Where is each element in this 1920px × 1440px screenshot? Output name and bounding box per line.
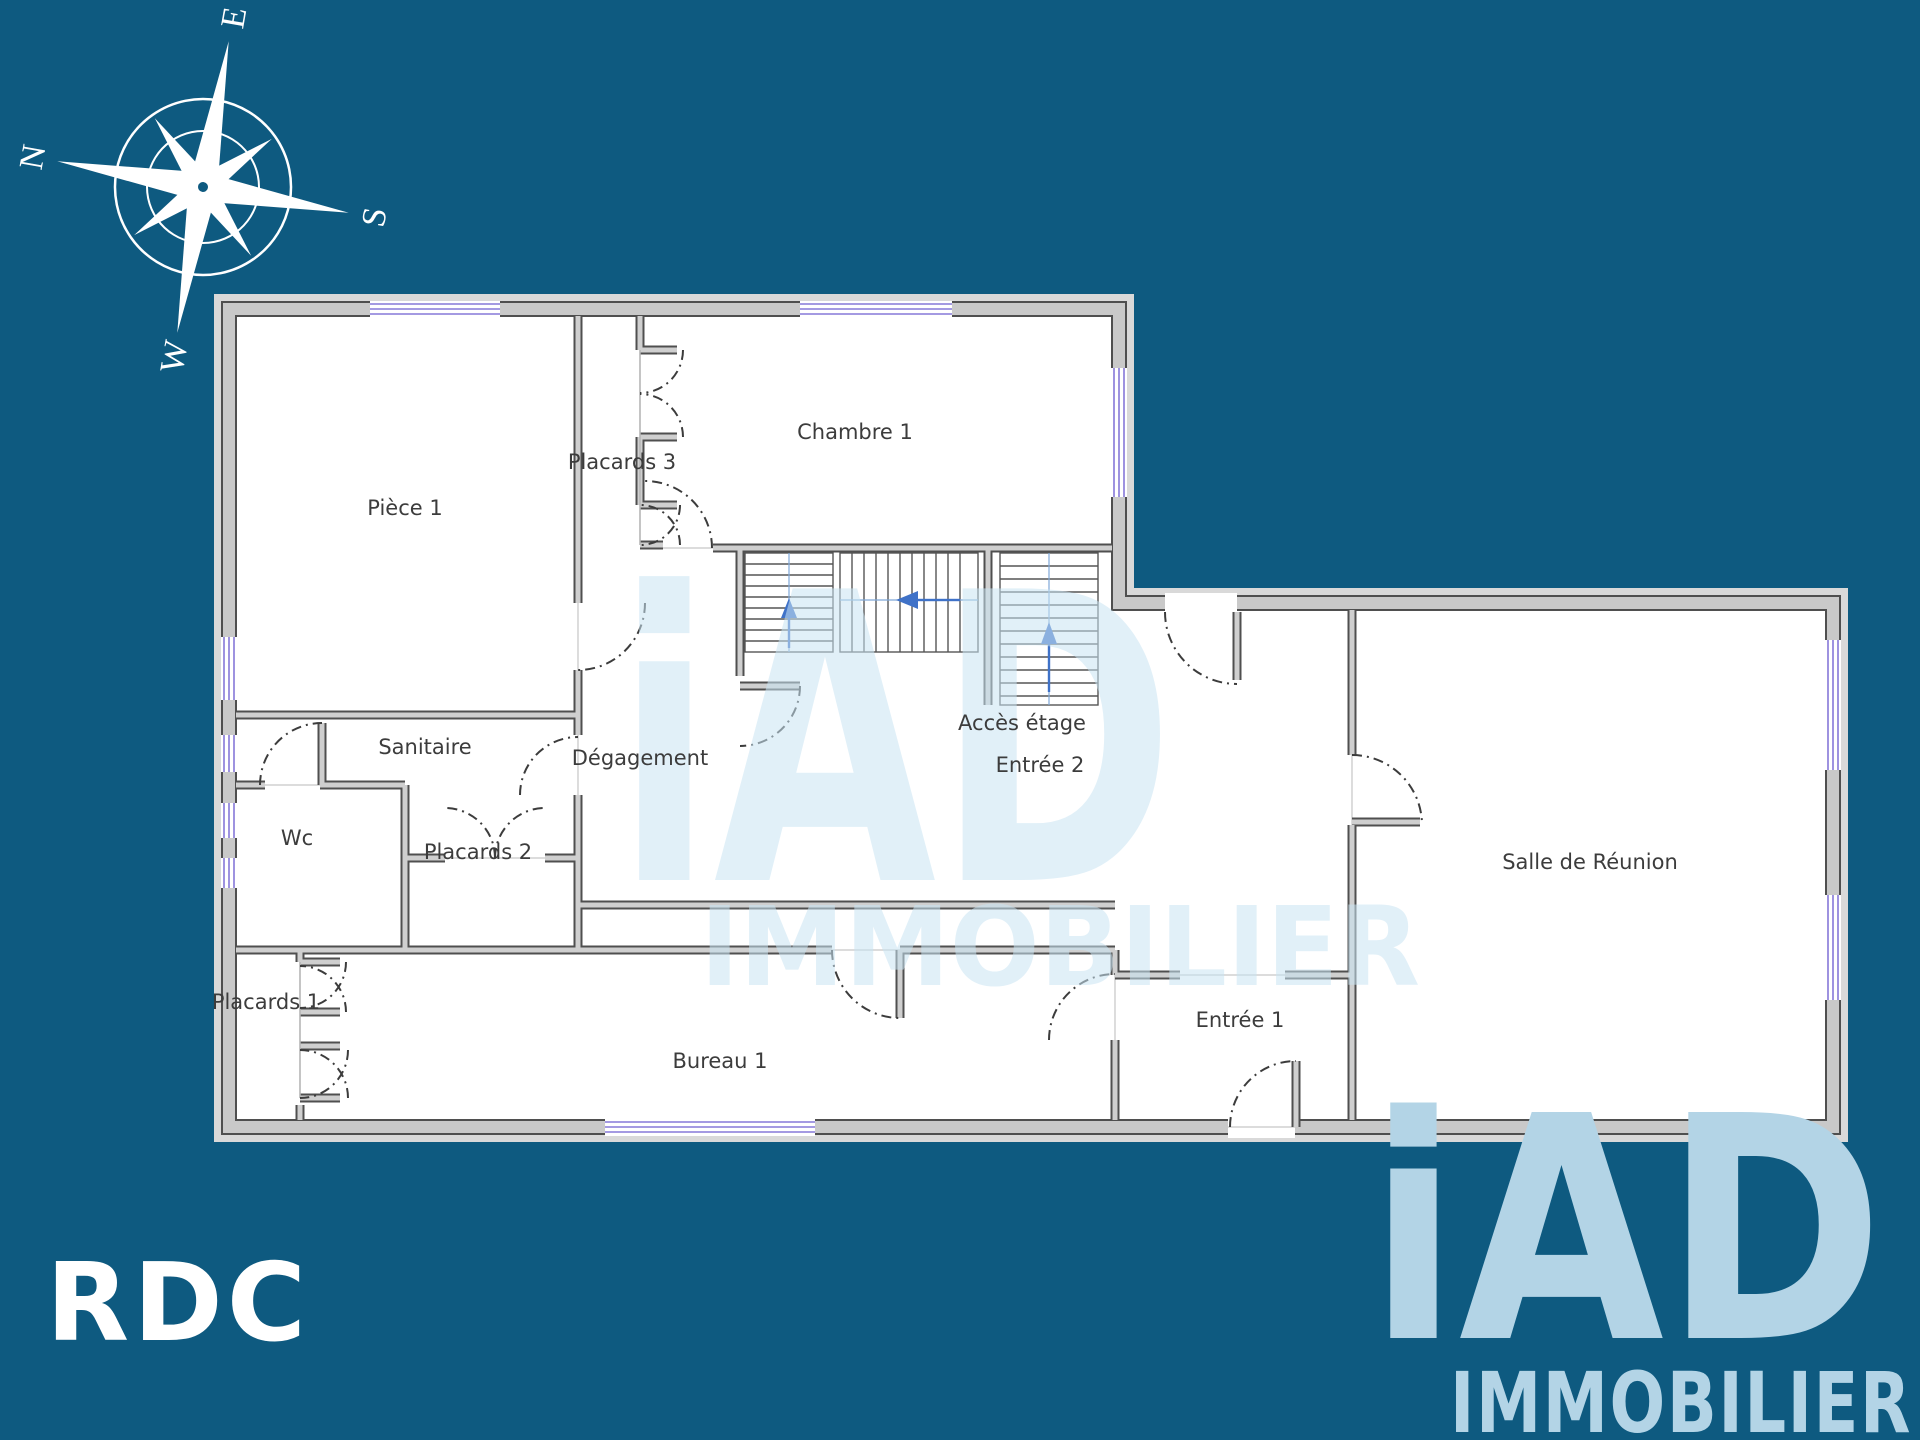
window-top-1 (370, 301, 500, 318)
room-label-wc: Wc (281, 826, 313, 850)
floor-plan-page: N E S W (0, 0, 1920, 1440)
brand-logo-subtitle: IMMOBILIER (1450, 1354, 1912, 1440)
window-top-2 (800, 301, 952, 318)
watermark-subtitle: IMMOBILIER (700, 883, 1420, 1011)
compass-south-label: S (355, 205, 395, 230)
floor-plan-canvas: N E S W (0, 0, 1920, 1440)
compass-east-label: E (214, 4, 254, 31)
window-left-4 (221, 858, 237, 888)
window-right-1 (1825, 640, 1841, 770)
brand-logo: iAD IMMOBILIER (1368, 1051, 1912, 1440)
room-label-bureau1: Bureau 1 (672, 1049, 767, 1073)
compass-north-label: N (13, 142, 54, 173)
room-label-placards3: Placards 3 (568, 450, 676, 474)
room-label-entree2: Entrée 2 (996, 753, 1085, 777)
entry-door-opening-top (1165, 593, 1237, 614)
window-right-2 (1825, 895, 1841, 1000)
window-east-upper-wing (1111, 368, 1127, 497)
floor-plan: iAD IMMOBILIER Pièce 1 Placards 3 Chambr… (212, 294, 1848, 1142)
floor-title: RDC (46, 1241, 310, 1366)
room-label-sanitaire: Sanitaire (378, 735, 471, 759)
window-left-3 (221, 803, 237, 838)
window-left-2 (221, 735, 237, 772)
window-left-1 (221, 637, 237, 700)
room-label-degagement: Dégagement (572, 746, 708, 770)
room-label-placards1: Placards 1 (212, 990, 320, 1014)
room-label-entree1: Entrée 1 (1196, 1008, 1285, 1032)
room-label-acces-etage: Accès étage (958, 711, 1086, 735)
room-label-salle-reunion: Salle de Réunion (1502, 850, 1678, 874)
compass-west-label: W (154, 337, 196, 376)
window-bottom-1 (605, 1119, 815, 1136)
room-label-chambre1: Chambre 1 (797, 420, 913, 444)
room-label-piece1: Pièce 1 (367, 496, 442, 520)
room-label-placards2: Placards 2 (424, 840, 532, 864)
